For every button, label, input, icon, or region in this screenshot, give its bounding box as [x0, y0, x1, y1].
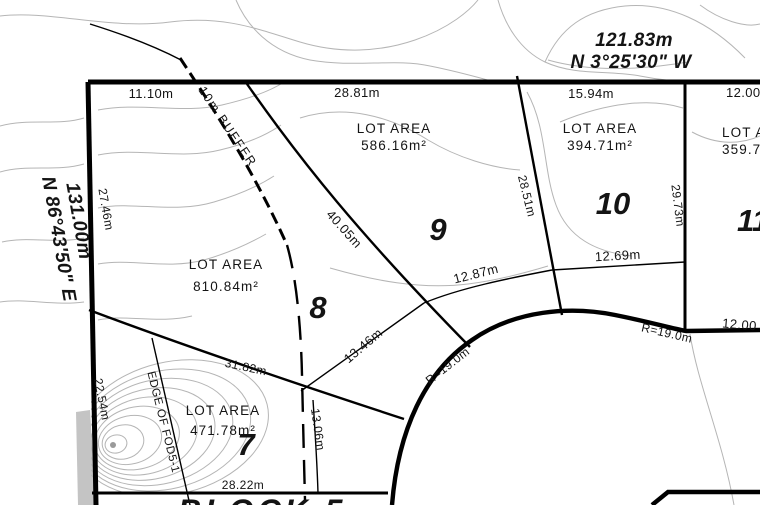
contour-line [0, 164, 84, 172]
lot-8-number: 8 [309, 290, 327, 325]
stream-line [90, 24, 181, 60]
contour-line [330, 266, 548, 286]
contour-line [560, 103, 683, 122]
buffer-label: 10m BUFFER [196, 84, 260, 170]
contour-line [527, 92, 632, 256]
block-label: BLOCK 5 [178, 493, 346, 505]
dim-lot7-south: 28.22m [222, 478, 264, 492]
dim-top-seg2: 28.81m [334, 85, 380, 100]
lot-9-area-label: LOT AREA [357, 121, 432, 136]
contour-center [110, 442, 116, 448]
lot-10-area-value: 394.71m² [567, 138, 633, 153]
contour-line [98, 125, 281, 155]
dim-top-seg3: 15.94m [568, 86, 614, 101]
lot-10-number: 10 [596, 186, 630, 221]
plat-map-stage: 121.83m N 3°25'30" W 131.00m N 86°43'50"… [0, 0, 760, 505]
dim-lot8-south: 13.46m [341, 325, 386, 366]
plat-map: 121.83m N 3°25'30" W 131.00m N 86°43'50"… [0, 0, 760, 505]
dim-radius-sw: R=19.0m [423, 344, 472, 387]
dim-west-seg1: 27.46m [95, 187, 116, 231]
north-bearing-length: 121.83m [595, 30, 673, 51]
labels-layer: 121.83m N 3°25'30" W 131.00m N 86°43'50"… [37, 30, 760, 505]
contour-line [0, 118, 84, 126]
dim-lot7-east: 13.06m [308, 407, 328, 451]
dim-lot10-south: 12.69m [595, 247, 641, 264]
contour-line [98, 176, 274, 208]
lot-9-area-value: 586.16m² [361, 138, 427, 153]
contour-line [0, 301, 84, 303]
lot10-south-boundary [552, 262, 685, 270]
lot-7-area-label: LOT AREA [186, 403, 261, 418]
lot-11-area-label: LOT AREA [722, 125, 760, 140]
contour-line [236, 0, 495, 82]
lot-11-number: 11 [737, 203, 760, 238]
lot-11-area-value: 359.7 [722, 142, 760, 157]
north-bearing-direction: N 3°25'30" W [571, 52, 694, 73]
lot-10-area-label: LOT AREA [563, 121, 638, 136]
lot-8-area-value: 810.84m² [193, 279, 259, 294]
lot-7-number: 7 [237, 427, 256, 462]
buffer-line-lower [287, 245, 305, 500]
dim-top-seg4: 12.00 [726, 85, 760, 100]
contour-line [700, 5, 760, 25]
lot-9-number: 9 [429, 212, 447, 247]
culdesac-road-edge [392, 311, 760, 505]
road-corner-edge [652, 492, 760, 505]
lot-8-area-label: LOT AREA [189, 257, 264, 272]
dim-lot9-lot10: 28.51m [515, 174, 539, 219]
contour-line [690, 334, 734, 505]
contour-ring [103, 433, 129, 456]
buffer-line-upper [180, 58, 287, 245]
dim-lot11-road: 12.00 [722, 315, 758, 333]
dim-top-seg1: 11.10m [129, 86, 174, 101]
